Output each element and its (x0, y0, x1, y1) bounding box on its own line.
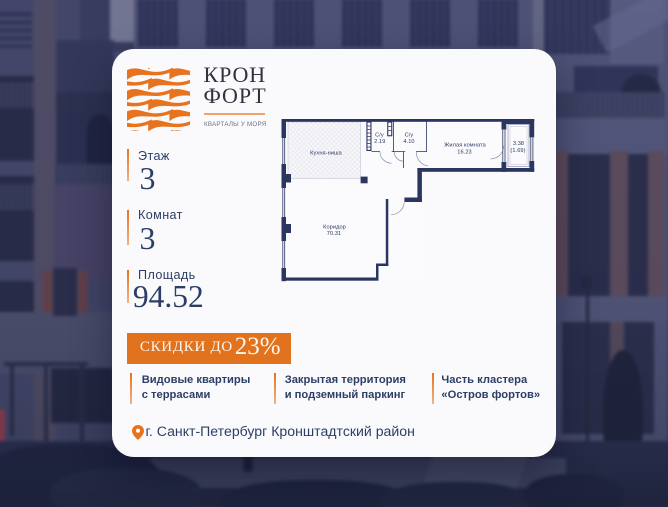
svg-text:Жилая комната: Жилая комната (444, 142, 486, 148)
svg-text:(1.69): (1.69) (510, 148, 525, 154)
svg-text:70.31: 70.31 (327, 231, 342, 237)
svg-text:16.23: 16.23 (457, 150, 472, 156)
svg-text:Кухня-ниша: Кухня-ниша (310, 150, 342, 156)
svg-text:С/у: С/у (375, 133, 384, 139)
svg-text:2.19: 2.19 (374, 139, 385, 145)
svg-text:3.38: 3.38 (513, 141, 524, 147)
svg-text:С/у: С/у (405, 133, 414, 139)
svg-text:Коридор: Коридор (323, 225, 346, 231)
svg-text:4.10: 4.10 (403, 139, 414, 145)
